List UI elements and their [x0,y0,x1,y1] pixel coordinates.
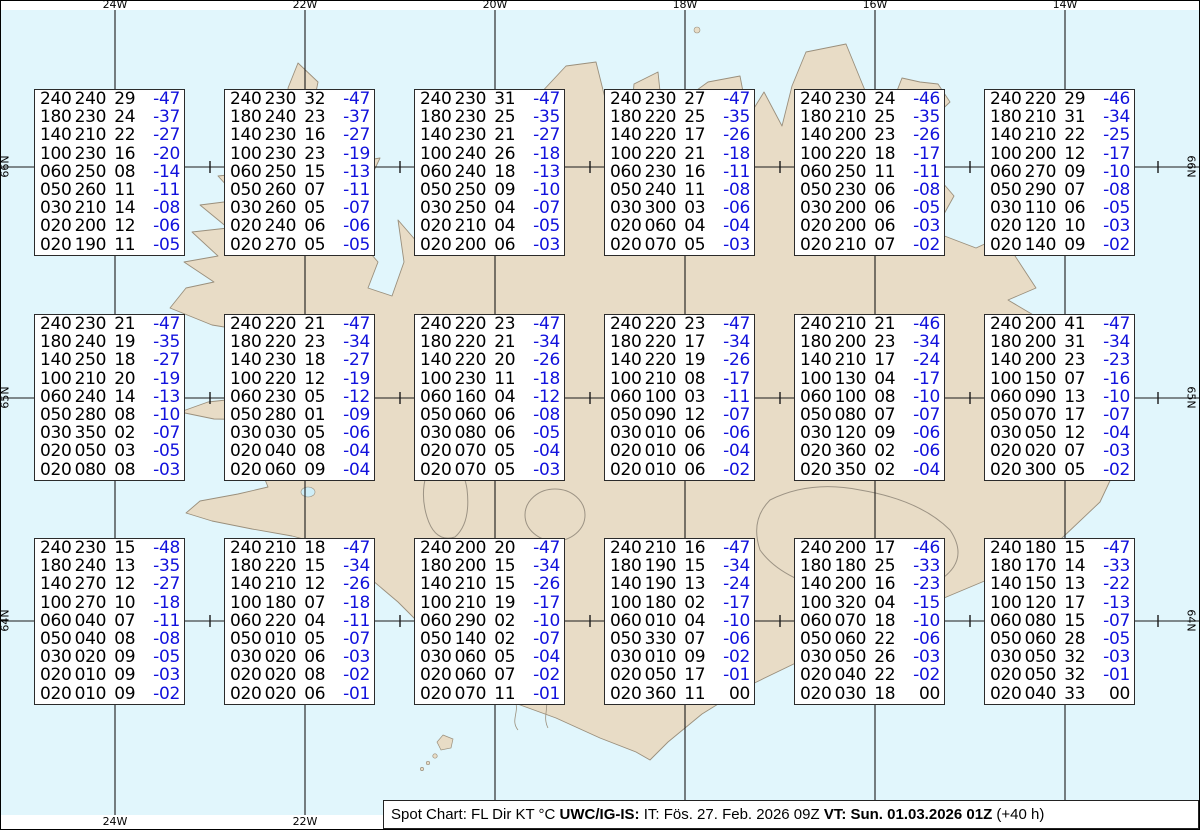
temperature-value: -07 [909,406,940,424]
wind-speed-value: 12 [684,406,705,424]
fl-dir-value: 050 280 [230,406,296,424]
fl-dir-value: 020 350 [800,461,866,479]
fl-dir-value: 050 280 [40,406,106,424]
spot-line: 100 27010-18 [40,594,180,612]
spot-line: 030 05032-03 [990,648,1130,666]
spot-line: 100 18007-18 [230,594,370,612]
temperature-value: -05 [1099,199,1130,217]
temperature-value: -18 [529,370,560,388]
wind-speed-value: 26 [874,648,895,666]
spot-line: 020 21007-02 [800,236,940,254]
fl-dir-value: 020 070 [420,442,486,460]
spot-line: 060 25015-13 [230,163,370,181]
fl-dir-value: 180 240 [40,557,106,575]
spot-line: 030 35002-07 [40,424,180,442]
wind-speed-value: 17 [874,539,895,557]
wind-speed-value: 15 [494,575,515,593]
wind-speed-value: 11 [114,181,135,199]
temperature-value: -34 [719,333,750,351]
spot-line: 180 21025-35 [800,108,940,126]
wind-speed-value: 17 [1064,406,1085,424]
fl-dir-value: 180 220 [610,333,676,351]
spot-line: 180 22025-35 [610,108,750,126]
spot-data-box: 240 18015-47180 17014-33140 15013-22100 … [984,538,1135,705]
fl-dir-value: 100 240 [420,145,486,163]
fl-dir-value: 240 220 [230,315,296,333]
fl-dir-value: 100 210 [40,370,106,388]
fl-dir-value: 020 240 [230,217,296,235]
temperature-value: -03 [909,217,940,235]
temperature-value: -04 [339,461,370,479]
temperature-value: -17 [909,370,940,388]
fl-dir-value: 020 060 [610,217,676,235]
temperature-value: -02 [909,236,940,254]
caption-bold-text: UWC/IG-IS: [560,806,640,823]
wind-speed-value: 22 [1064,126,1085,144]
wind-speed-value: 18 [874,612,895,630]
fl-dir-value: 100 230 [230,145,296,163]
fl-dir-value: 030 010 [610,424,676,442]
temperature-value: -10 [909,612,940,630]
fl-dir-value: 030 210 [40,199,106,217]
spot-line: 100 20012-17 [990,145,1130,163]
wind-speed-value: 23 [494,315,515,333]
temperature-value: -03 [1099,648,1130,666]
fl-dir-value: 020 020 [230,666,296,684]
wind-speed-value: 08 [114,406,135,424]
fl-dir-value: 240 180 [990,539,1056,557]
spot-line: 140 22017-26 [610,126,750,144]
wind-speed-value: 20 [494,539,515,557]
wind-speed-value: 20 [494,351,515,369]
spot-data-box: 240 23032-47180 24023-37140 23016-27100 … [224,89,375,256]
spot-line: 060 01004-10 [610,612,750,630]
fl-dir-value: 050 060 [800,630,866,648]
wind-speed-value: 02 [874,461,895,479]
spot-line: 030 11006-05 [990,199,1130,217]
spot-line: 100 18002-17 [610,594,750,612]
spot-line: 030 01006-06 [610,424,750,442]
wind-speed-value: 26 [494,145,515,163]
spot-line: 180 22021-34 [420,333,560,351]
wind-speed-value: 03 [684,388,705,406]
wind-speed-value: 27 [684,90,705,108]
temperature-value: -19 [149,370,180,388]
wind-speed-value: 16 [874,575,895,593]
fl-dir-value: 020 010 [610,461,676,479]
temperature-value: -11 [909,163,940,181]
spot-line: 030 01009-02 [610,648,750,666]
wind-speed-value: 04 [684,612,705,630]
lakes [301,487,315,497]
spot-line: 060 16004-12 [420,388,560,406]
fl-dir-value: 020 300 [990,461,1056,479]
wind-speed-value: 08 [114,163,135,181]
spot-line: 020 30005-02 [990,461,1130,479]
spot-line: 240 22023-47 [610,315,750,333]
wind-speed-value: 05 [494,648,515,666]
temperature-value: -01 [339,685,370,703]
lon-label: 24W [93,817,137,827]
fl-dir-value: 020 190 [40,236,106,254]
temperature-value: -47 [719,315,750,333]
spot-line: 030 26005-07 [230,199,370,217]
temperature-value: -13 [149,388,180,406]
spot-line: 020 07005-03 [610,236,750,254]
wind-speed-value: 13 [114,557,135,575]
spot-line: 100 12017-13 [990,594,1130,612]
wind-speed-value: 28 [1064,630,1085,648]
wind-speed-value: 07 [304,594,325,612]
temperature-value: -37 [149,108,180,126]
temperature-value: -06 [719,199,750,217]
spot-line: 030 30003-06 [610,199,750,217]
fl-dir-value: 030 010 [610,648,676,666]
lon-label: 22W [283,817,327,827]
wind-speed-value: 14 [114,388,135,406]
spot-line: 020 20006-03 [420,236,560,254]
spot-data-box: 240 23021-47180 24019-35140 25018-27100 … [34,314,185,481]
fl-dir-value: 240 230 [610,90,676,108]
temperature-value: -07 [149,424,180,442]
spot-line: 060 08015-07 [990,612,1130,630]
temperature-value: 00 [719,685,750,703]
spot-line: 060 25008-14 [40,163,180,181]
wind-speed-value: 11 [494,370,515,388]
spot-data-box: 240 24029-47180 23024-37140 21022-27100 … [34,89,185,256]
temperature-value: -20 [149,145,180,163]
spot-line: 060 24018-13 [420,163,560,181]
spot-line: 030 25004-07 [420,199,560,217]
fl-dir-value: 050 250 [420,181,486,199]
fl-dir-value: 050 260 [230,181,296,199]
temperature-value: -34 [339,333,370,351]
wind-speed-value: 10 [114,594,135,612]
wind-speed-value: 22 [114,126,135,144]
fl-dir-value: 050 240 [610,181,676,199]
fl-dir-value: 020 040 [230,442,296,460]
temperature-value: -04 [909,461,940,479]
temperature-value: -08 [149,630,180,648]
spot-line: 020 0403300 [990,685,1130,703]
fl-dir-value: 030 300 [610,199,676,217]
spot-line: 240 20020-47 [420,539,560,557]
wind-speed-value: 05 [494,442,515,460]
wind-speed-value: 25 [494,108,515,126]
spot-line: 240 23015-48 [40,539,180,557]
spot-line: 030 05026-03 [800,648,940,666]
wind-speed-value: 13 [1064,575,1085,593]
temperature-value: -26 [719,126,750,144]
wind-speed-value: 18 [114,351,135,369]
spot-line: 050 26007-11 [230,181,370,199]
temperature-value: -04 [339,442,370,460]
spot-line: 180 24013-35 [40,557,180,575]
wind-speed-value: 04 [874,594,895,612]
fl-dir-value: 060 160 [420,388,486,406]
temperature-value: -10 [719,612,750,630]
wind-speed-value: 22 [874,630,895,648]
fl-dir-value: 180 210 [990,108,1056,126]
wind-speed-value: 18 [874,685,895,703]
temperature-value: -03 [149,666,180,684]
temperature-value: -11 [339,612,370,630]
temperature-value: -06 [719,630,750,648]
temperature-value: -06 [719,424,750,442]
spot-line: 050 28001-09 [230,406,370,424]
wind-speed-value: 07 [304,181,325,199]
fl-dir-value: 050 040 [40,630,106,648]
fl-dir-value: 020 210 [800,236,866,254]
fl-dir-value: 100 130 [800,370,866,388]
wind-speed-value: 24 [114,108,135,126]
spot-line: 100 23016-20 [40,145,180,163]
spot-line: 140 19013-24 [610,575,750,593]
fl-dir-value: 020 060 [420,666,486,684]
temperature-value: -18 [529,145,560,163]
spot-line: 180 20023-34 [800,333,940,351]
wind-speed-value: 16 [684,539,705,557]
fl-dir-value: 020 010 [40,685,106,703]
fl-dir-value: 140 200 [800,126,866,144]
temperature-value: -02 [339,666,370,684]
wind-speed-value: 04 [684,217,705,235]
wind-speed-value: 08 [114,630,135,648]
spot-line: 140 22020-26 [420,351,560,369]
wind-speed-value: 09 [684,648,705,666]
fl-dir-value: 020 360 [610,685,676,703]
wind-speed-value: 17 [684,666,705,684]
spot-line: 020 06009-04 [230,461,370,479]
spot-line: 020 01006-04 [610,442,750,460]
spot-line: 140 20023-23 [990,351,1130,369]
fl-dir-value: 020 140 [990,236,1056,254]
temperature-value: -17 [719,370,750,388]
spot-line: 140 23018-27 [230,351,370,369]
wind-speed-value: 04 [494,199,515,217]
spot-data-box: 240 22023-47180 22021-34140 22020-26100 … [414,314,565,481]
wind-speed-value: 13 [684,575,705,593]
caption-text: IT: Fös. 27. Feb. 2026 09Z [640,806,824,823]
temperature-value: -08 [149,199,180,217]
spot-line: 050 14002-07 [420,630,560,648]
spot-line: 060 23005-12 [230,388,370,406]
spot-line: 100 21008-17 [610,370,750,388]
fl-dir-value: 180 240 [40,333,106,351]
spot-line: 180 23025-35 [420,108,560,126]
fl-dir-value: 050 070 [990,406,1056,424]
fl-dir-value: 060 250 [40,163,106,181]
wind-speed-value: 04 [874,370,895,388]
fl-dir-value: 140 210 [420,575,486,593]
spot-line: 020 20012-06 [40,217,180,235]
wind-speed-value: 15 [1064,612,1085,630]
fl-dir-value: 050 330 [610,630,676,648]
temperature-value: -10 [1099,163,1130,181]
spot-data-box: 240 22023-47180 22017-34140 22019-26100 … [604,314,755,481]
fl-dir-value: 240 220 [990,90,1056,108]
temperature-value: -47 [1099,315,1130,333]
spot-line: 240 21018-47 [230,539,370,557]
temperature-value: -12 [529,388,560,406]
spot-line: 180 20015-34 [420,557,560,575]
spot-line: 020 02008-02 [230,666,370,684]
wind-speed-value: 06 [494,236,515,254]
wind-speed-value: 17 [684,333,705,351]
fl-dir-value: 060 010 [610,612,676,630]
fl-dir-value: 140 220 [610,126,676,144]
fl-dir-value: 050 140 [420,630,486,648]
spot-line: 140 21012-26 [230,575,370,593]
fl-dir-value: 240 210 [230,539,296,557]
fl-dir-value: 240 200 [800,539,866,557]
fl-dir-value: 240 200 [990,315,1056,333]
lat-label: 65N [1186,383,1197,413]
spot-line: 030 06005-04 [420,648,560,666]
wind-speed-value: 03 [114,442,135,460]
wind-speed-value: 19 [114,333,135,351]
wind-speed-value: 11 [684,181,705,199]
temperature-value: 00 [909,685,940,703]
wind-speed-value: 32 [1064,648,1085,666]
fl-dir-value: 030 060 [420,648,486,666]
wind-speed-value: 01 [304,406,325,424]
fl-dir-value: 030 110 [990,199,1056,217]
fl-dir-value: 050 260 [40,181,106,199]
temperature-value: -04 [719,217,750,235]
spot-line: 240 18015-47 [990,539,1130,557]
spot-line: 100 22012-19 [230,370,370,388]
temperature-value: -06 [909,442,940,460]
fl-dir-value: 180 210 [800,108,866,126]
wind-speed-value: 04 [494,388,515,406]
fl-dir-value: 140 150 [990,575,1056,593]
temperature-value: -11 [339,181,370,199]
wind-speed-value: 15 [304,557,325,575]
lon-label: 24W [93,0,137,10]
fl-dir-value: 050 080 [800,406,866,424]
wind-speed-value: 32 [1064,666,1085,684]
lon-label: 22W [283,0,327,10]
wind-speed-value: 31 [494,90,515,108]
fl-dir-value: 140 210 [40,126,106,144]
temperature-value: -07 [529,630,560,648]
temperature-value: -15 [909,594,940,612]
temperature-value: -10 [529,181,560,199]
temperature-value: -27 [529,126,560,144]
spot-line: 140 21022-27 [40,126,180,144]
fl-dir-value: 140 210 [990,126,1056,144]
spot-line: 180 17014-33 [990,557,1130,575]
fl-dir-value: 180 200 [420,557,486,575]
temperature-value: -27 [339,126,370,144]
wind-speed-value: 23 [304,108,325,126]
temperature-value: -34 [529,557,560,575]
spot-line: 030 08006-05 [420,424,560,442]
wind-speed-value: 21 [874,315,895,333]
temperature-value: -26 [529,351,560,369]
wind-speed-value: 33 [1064,685,1085,703]
wind-speed-value: 19 [494,594,515,612]
fl-dir-value: 060 080 [990,612,1056,630]
wind-speed-value: 07 [874,406,895,424]
fl-dir-value: 020 070 [610,236,676,254]
temperature-value: -06 [149,217,180,235]
fl-dir-value: 050 090 [610,406,676,424]
temperature-value: -18 [339,594,370,612]
spot-line: 030 20006-05 [800,199,940,217]
temperature-value: -34 [909,333,940,351]
fl-dir-value: 240 220 [610,315,676,333]
spot-line: 240 20017-46 [800,539,940,557]
spot-line: 050 28008-10 [40,406,180,424]
wind-speed-value: 05 [304,630,325,648]
wind-speed-value: 08 [304,442,325,460]
fl-dir-value: 180 220 [230,557,296,575]
spot-line: 180 22023-34 [230,333,370,351]
spot-data-box: 240 21021-46180 20023-34140 21017-24100 … [794,314,945,481]
wind-speed-value: 05 [304,388,325,406]
temperature-value: -19 [339,370,370,388]
temperature-value: -27 [149,126,180,144]
temperature-value: -11 [149,181,180,199]
temperature-value: -05 [149,442,180,460]
fl-dir-value: 100 320 [800,594,866,612]
wind-speed-value: 12 [304,370,325,388]
temperature-value: -02 [529,666,560,684]
spot-data-box: 240 21016-47180 19015-34140 19013-24100 … [604,538,755,705]
fl-dir-value: 050 060 [420,406,486,424]
temperature-value: -22 [1099,575,1130,593]
fl-dir-value: 180 200 [990,333,1056,351]
spot-line: 240 23031-47 [420,90,560,108]
fl-dir-value: 140 250 [40,351,106,369]
spot-line: 020 08008-03 [40,461,180,479]
temperature-value: -34 [719,557,750,575]
spot-line: 060 04007-11 [40,612,180,630]
spot-line: 020 27005-05 [230,236,370,254]
wind-speed-value: 11 [494,685,515,703]
fl-dir-value: 240 240 [40,90,106,108]
fl-dir-value: 030 350 [40,424,106,442]
wind-speed-value: 32 [304,90,325,108]
spot-line: 030 02006-03 [230,648,370,666]
wind-speed-value: 03 [684,199,705,217]
fl-dir-value: 140 190 [610,575,676,593]
wind-speed-value: 24 [874,90,895,108]
temperature-value: -23 [1099,351,1130,369]
wind-speed-value: 23 [874,333,895,351]
temperature-value: -34 [339,557,370,575]
wind-speed-value: 09 [494,181,515,199]
fl-dir-value: 240 220 [420,315,486,333]
fl-dir-value: 100 200 [990,145,1056,163]
spot-line: 050 06028-05 [990,630,1130,648]
temperature-value: -18 [149,594,180,612]
temperature-value: -27 [149,575,180,593]
spot-line: 020 36002-06 [800,442,940,460]
temperature-value: -03 [909,648,940,666]
temperature-value: -02 [1099,461,1130,479]
temperature-value: -33 [1099,557,1130,575]
temperature-value: -02 [1099,236,1130,254]
fl-dir-value: 060 230 [610,163,676,181]
wind-speed-value: 14 [114,199,135,217]
wind-speed-value: 23 [1064,351,1085,369]
fl-dir-value: 140 200 [990,351,1056,369]
fl-dir-value: 020 080 [40,461,106,479]
wind-speed-value: 23 [304,145,325,163]
